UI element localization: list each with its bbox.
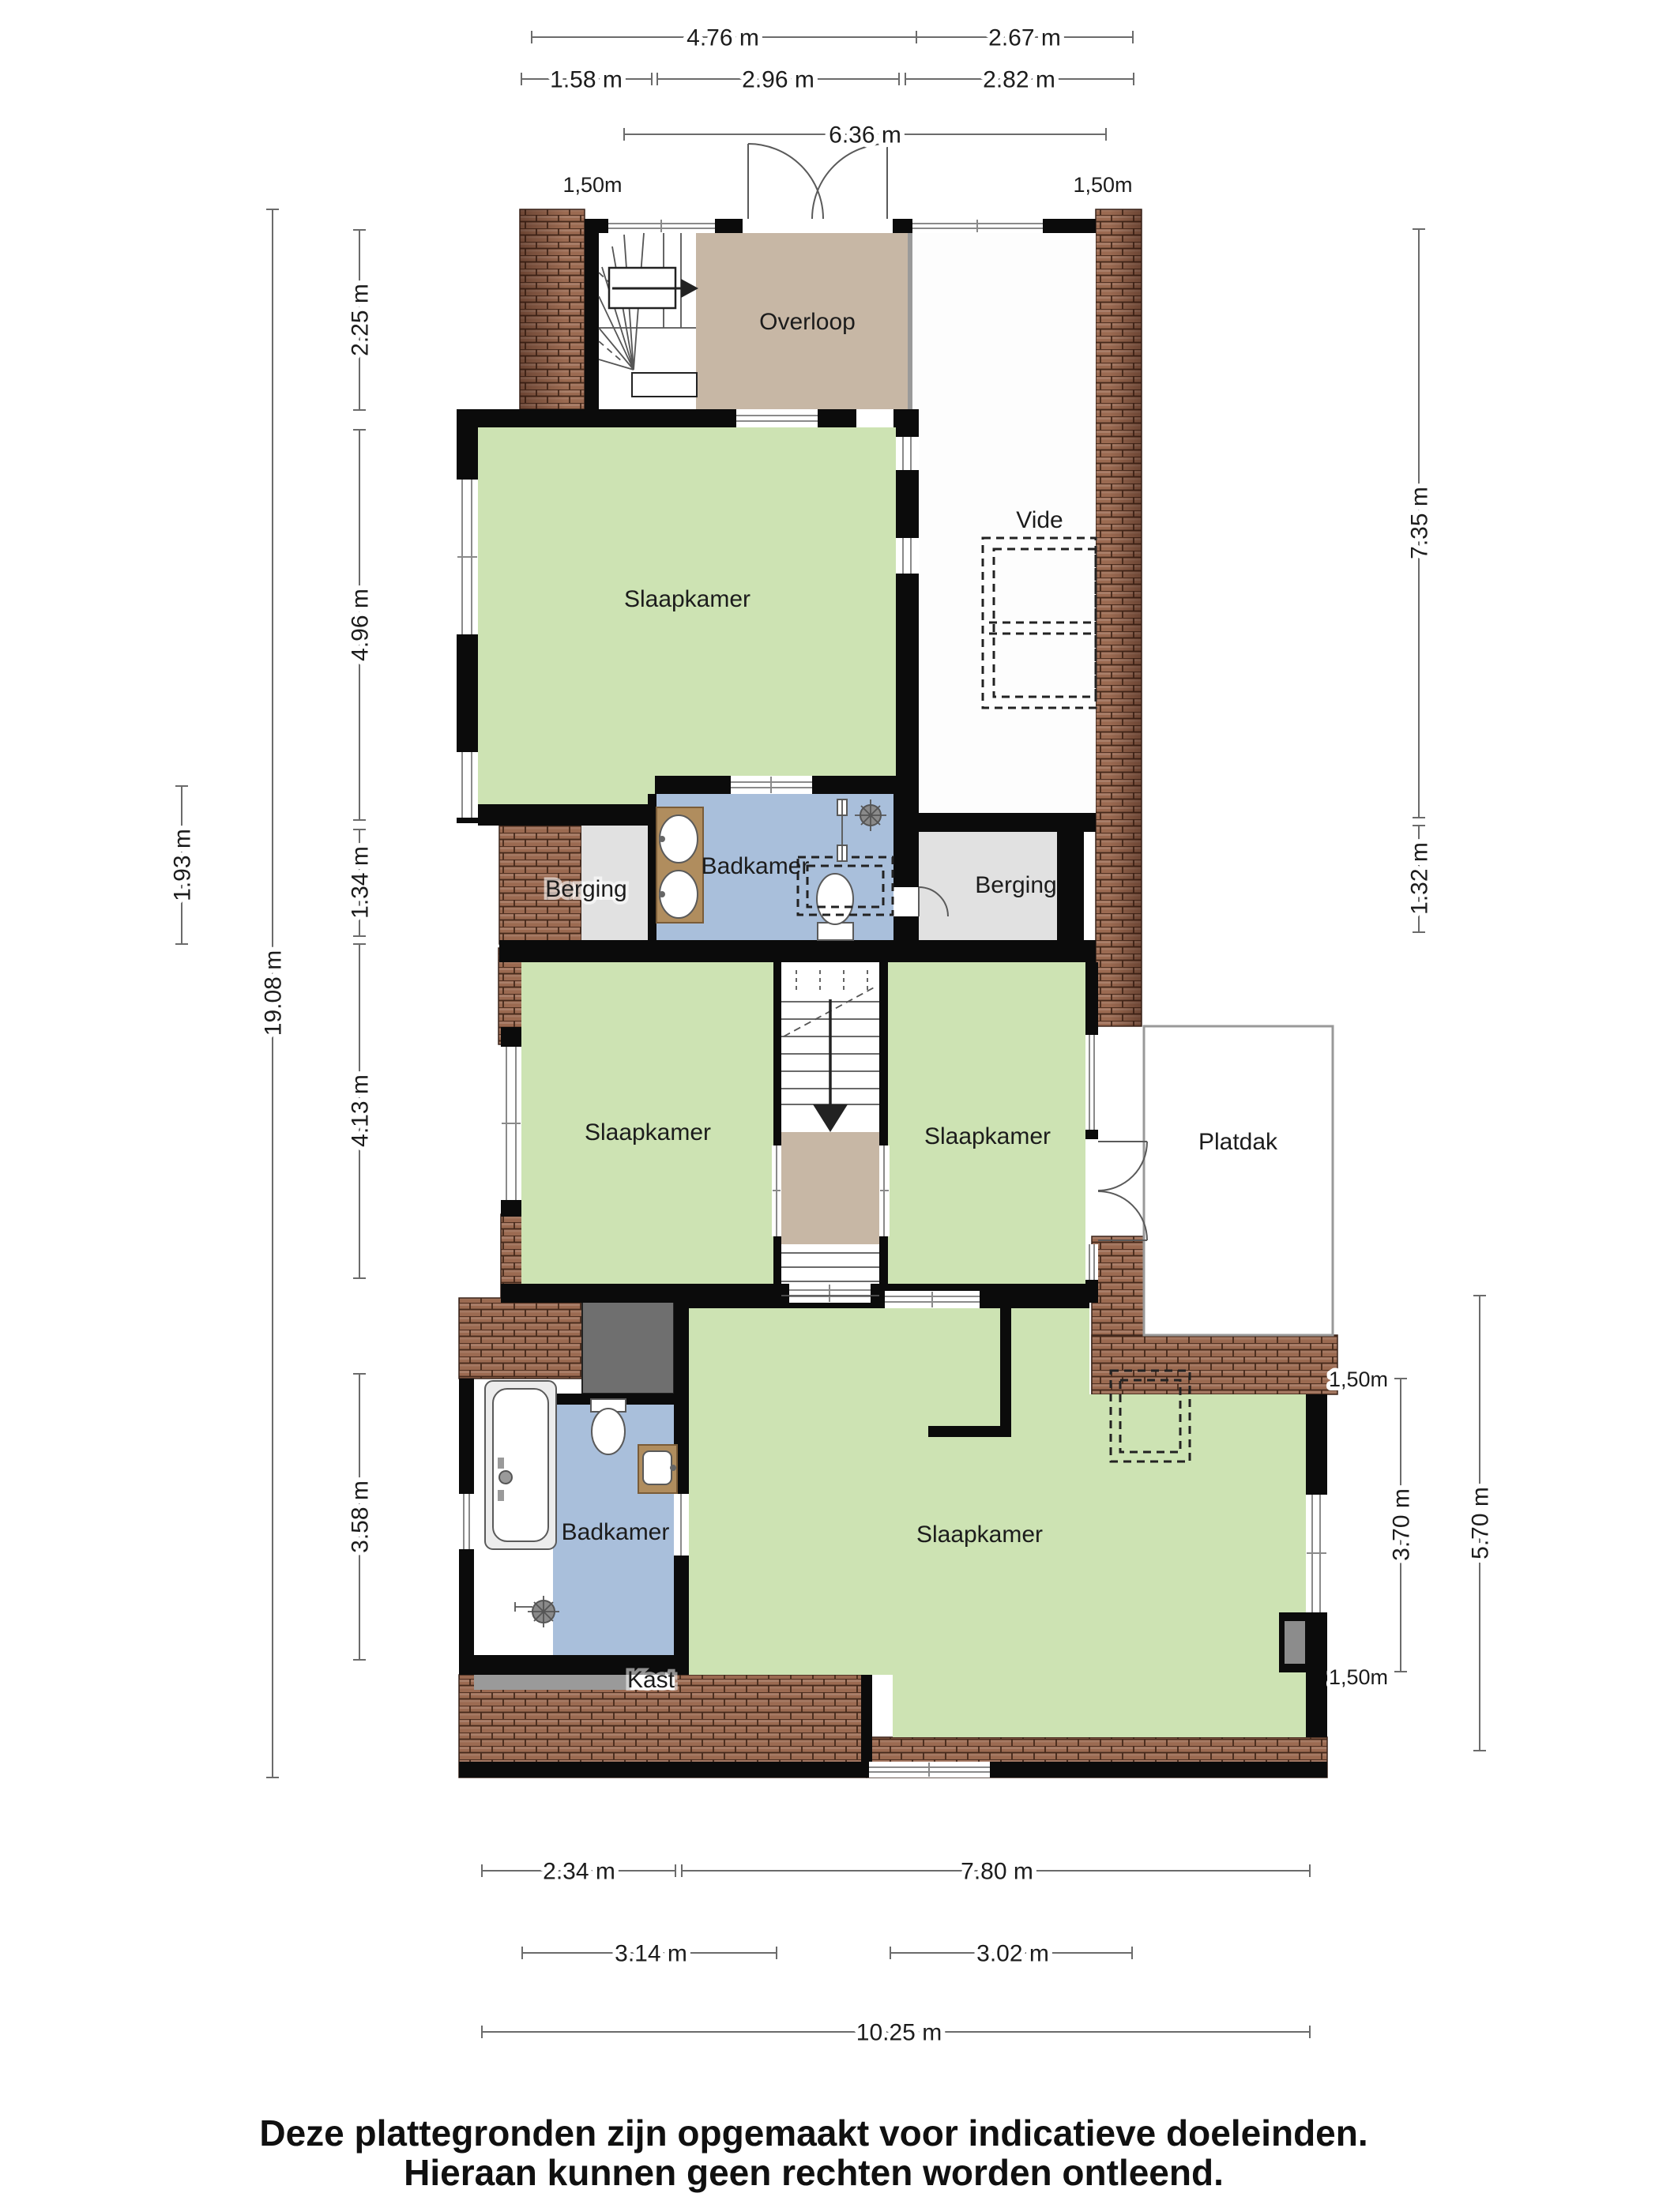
chimney-box-inner xyxy=(1285,1621,1305,1664)
dim-label: 2.96 m xyxy=(742,67,814,93)
platdak-double-door xyxy=(1098,1142,1147,1240)
dim-193: 1.93 m xyxy=(170,786,196,944)
wall xyxy=(457,634,478,752)
room-label-berging-right: Berging xyxy=(975,872,1056,898)
dim-label: 2.67 m xyxy=(988,25,1061,51)
opening-overloop-south xyxy=(856,409,893,427)
room-label-badkamer-bottom: Badkamer xyxy=(562,1519,670,1545)
dim-label: 10.25 m xyxy=(856,2020,942,2046)
room-label-berging-left: Berging xyxy=(545,876,626,902)
dimensions-left: 2.25 m 4.96 m 1.34 m 4.13 m 3.58 m 1.93 … xyxy=(170,209,374,1777)
wall xyxy=(896,470,919,538)
wall xyxy=(893,219,912,233)
dim-636: 6.36 m xyxy=(624,122,1106,149)
dim-label: 6.36 m xyxy=(829,122,901,149)
dim-296: 2.96 m xyxy=(657,67,899,93)
stair-step-box xyxy=(632,373,697,397)
dim-label: 7.35 m xyxy=(1407,487,1433,559)
dim-225: 2.25 m xyxy=(348,230,374,410)
room-label-kast: Kast xyxy=(627,1667,675,1693)
dim-302: 3.02 m xyxy=(890,1941,1132,1967)
window-slaapkamer-top-west-b xyxy=(457,752,478,818)
wall xyxy=(715,219,743,233)
wall xyxy=(501,1200,521,1217)
window-bottom-south xyxy=(869,1762,990,1777)
window-slaapkamer-mid-east-b xyxy=(1085,1244,1098,1280)
wall xyxy=(674,1556,689,1663)
roof-patch-bottom-left-corner xyxy=(459,1298,585,1379)
floor-vide-area xyxy=(912,233,1096,813)
faucet-mid-2 xyxy=(659,891,665,897)
dormer-block xyxy=(582,1296,674,1394)
dimensions-bottom: 2.34 m 7.80 m 3.14 m 3.02 m 10.25 m xyxy=(482,1859,1310,2046)
room-label-platdak: Platdak xyxy=(1198,1129,1278,1155)
wall xyxy=(1043,219,1096,233)
height-marker-right-bottom: 1,50m xyxy=(1329,1665,1388,1689)
door-opening-berging-right xyxy=(893,887,919,916)
dim-label: 1.34 m xyxy=(348,846,374,919)
bathtub xyxy=(485,1381,556,1549)
room-label-overloop: Overloop xyxy=(759,309,856,335)
wall xyxy=(501,1027,521,1047)
window-midsection-south xyxy=(789,1284,871,1303)
shower-head-bottom xyxy=(515,1596,559,1627)
wall xyxy=(893,794,919,887)
wall xyxy=(928,1426,1011,1437)
window-slaapkamer-top-east-b xyxy=(896,538,919,574)
dim-label: 3.02 m xyxy=(976,1941,1049,1967)
floor-platdak xyxy=(1144,1026,1333,1335)
room-label-slaapkamer-mid-right: Slaapkamer xyxy=(924,1123,1051,1149)
roof-shade-top-left xyxy=(520,209,585,409)
window-top-left xyxy=(608,219,715,233)
roof-shade-right xyxy=(1096,209,1142,1026)
dim-735: 7.35 m xyxy=(1407,229,1433,818)
height-marker-right-top: 1,50m xyxy=(1329,1367,1388,1391)
dim-label: 1.32 m xyxy=(1407,842,1433,915)
dim-label: 2.25 m xyxy=(348,284,374,356)
dim-282: 2.82 m xyxy=(905,67,1134,93)
height-marker-top-right: 1,50m xyxy=(1073,173,1132,197)
room-label-vide: Vide xyxy=(1016,507,1063,533)
window-badkamer-mid-north xyxy=(731,776,812,794)
wall xyxy=(818,409,856,427)
wall xyxy=(893,916,919,940)
wall xyxy=(459,1762,869,1777)
floor-plan-svg: Overloop Slaapkamer Vide Berging Badkame… xyxy=(0,0,1659,2212)
dim-label: 7.80 m xyxy=(961,1859,1033,1885)
dim-1908: 19.08 m xyxy=(261,209,287,1777)
wall xyxy=(648,794,656,940)
dim-label: 4.76 m xyxy=(687,25,759,51)
window-slaapkamer-top-east-a xyxy=(896,437,919,470)
wall xyxy=(980,1291,1089,1308)
room-label-slaapkamer-mid-left: Slaapkamer xyxy=(585,1119,711,1145)
door-opening-badkamer-bottom xyxy=(674,1494,689,1556)
floorplan-page: Overloop Slaapkamer Vide Berging Badkame… xyxy=(0,0,1659,2212)
wall xyxy=(457,818,478,823)
dim-1025: 10.25 m xyxy=(482,2020,1310,2046)
dim-134: 1.34 m xyxy=(348,829,374,936)
dim-476: 4.76 m xyxy=(532,25,916,51)
dim-label: 1.58 m xyxy=(550,67,623,93)
height-marker-top-left: 1,50m xyxy=(562,173,622,197)
window-stairwell-east xyxy=(879,1145,890,1236)
wall xyxy=(1057,826,1084,945)
dim-413: 4.13 m xyxy=(348,944,374,1278)
dim-132: 1.32 m xyxy=(1407,826,1433,932)
dim-358: 3.58 m xyxy=(348,1374,374,1660)
dim-label: 19.08 m xyxy=(261,950,287,1036)
room-label-slaapkamer-bottom: Slaapkamer xyxy=(916,1522,1043,1548)
wall xyxy=(896,574,919,822)
dim-label: 5.70 m xyxy=(1468,1487,1494,1559)
wall-thin xyxy=(908,233,912,409)
wall xyxy=(1085,962,1098,1035)
wall xyxy=(459,1379,474,1494)
wall xyxy=(478,804,656,826)
dim-label: 4.13 m xyxy=(348,1074,374,1147)
dimensions-right: 7.35 m 1.32 m 3.70 m 5.70 m 1,50m 1,50m xyxy=(1329,229,1494,1751)
footer-line-1: Deze plattegronden zijn opgemaakt voor i… xyxy=(259,2112,1367,2154)
wall xyxy=(896,427,919,437)
dim-314: 3.14 m xyxy=(522,1941,777,1967)
dim-496: 4.96 m xyxy=(348,430,374,820)
wall xyxy=(457,409,736,427)
vanity-bottom xyxy=(638,1445,677,1493)
wall xyxy=(990,1762,1327,1777)
dim-780: 7.80 m xyxy=(682,1859,1310,1885)
wall xyxy=(879,962,888,1145)
wall xyxy=(773,962,781,1145)
dim-267: 2.67 m xyxy=(916,25,1133,51)
sink-mid-1 xyxy=(660,815,698,863)
dimensions-top: 4.76 m 2.67 m 1.58 m 2.96 m 2.82 m 6.36 … xyxy=(521,25,1134,197)
wall xyxy=(457,427,478,480)
window-slaapkamer-top-west-a xyxy=(457,480,478,634)
faucet-mid-1 xyxy=(659,836,665,842)
footer: Deze plattegronden zijn opgemaakt voor i… xyxy=(259,2112,1367,2193)
window-stairwell-west xyxy=(772,1145,781,1236)
floor-slaapkamer-top xyxy=(478,427,896,822)
window-slaapkamer-mid-east xyxy=(1085,1035,1098,1130)
window-top-right xyxy=(912,219,1043,233)
window-slaapkamer-mid-west xyxy=(501,1047,521,1200)
wall xyxy=(812,776,896,794)
dim-label: 2.82 m xyxy=(983,67,1055,93)
room-label-slaapkamer-top: Slaapkamer xyxy=(624,586,750,612)
dim-158: 1.58 m xyxy=(521,67,652,93)
dim-label: 2.34 m xyxy=(543,1859,615,1885)
dim-label: 3.58 m xyxy=(348,1480,374,1553)
dim-label: 1.93 m xyxy=(170,829,196,901)
wall xyxy=(893,409,919,427)
wall xyxy=(1306,1394,1327,1495)
wall xyxy=(585,233,599,409)
entry-double-door xyxy=(748,144,887,219)
window-badkamer-bottom-west xyxy=(459,1494,474,1549)
dim-label: 4.96 m xyxy=(348,589,374,661)
wall xyxy=(499,940,1096,962)
wall xyxy=(655,776,731,794)
window-slaapkamer-bottom-north xyxy=(885,1291,980,1308)
window-slaapkamer-bottom-east xyxy=(1306,1495,1327,1612)
floor-stair-landing xyxy=(781,1132,879,1244)
wall xyxy=(861,1675,872,1762)
room-label-badkamer-mid: Badkamer xyxy=(702,853,810,879)
dim-570: 5.70 m xyxy=(1468,1296,1494,1751)
window-overloop-south xyxy=(736,409,818,427)
dim-370: 3.70 m xyxy=(1389,1379,1415,1672)
roof-band-under-platdak xyxy=(1092,1335,1337,1394)
dim-234: 2.34 m xyxy=(482,1859,675,1885)
dim-label: 3.70 m xyxy=(1389,1488,1415,1561)
toilet-bottom xyxy=(591,1399,626,1454)
wall xyxy=(1085,1130,1098,1139)
wall xyxy=(585,219,608,233)
footer-line-2: Hieraan kunnen geen rechten worden ontle… xyxy=(404,2152,1224,2193)
dim-label: 3.14 m xyxy=(615,1941,687,1967)
sink-mid-2 xyxy=(660,871,698,918)
wall xyxy=(1000,1291,1011,1437)
